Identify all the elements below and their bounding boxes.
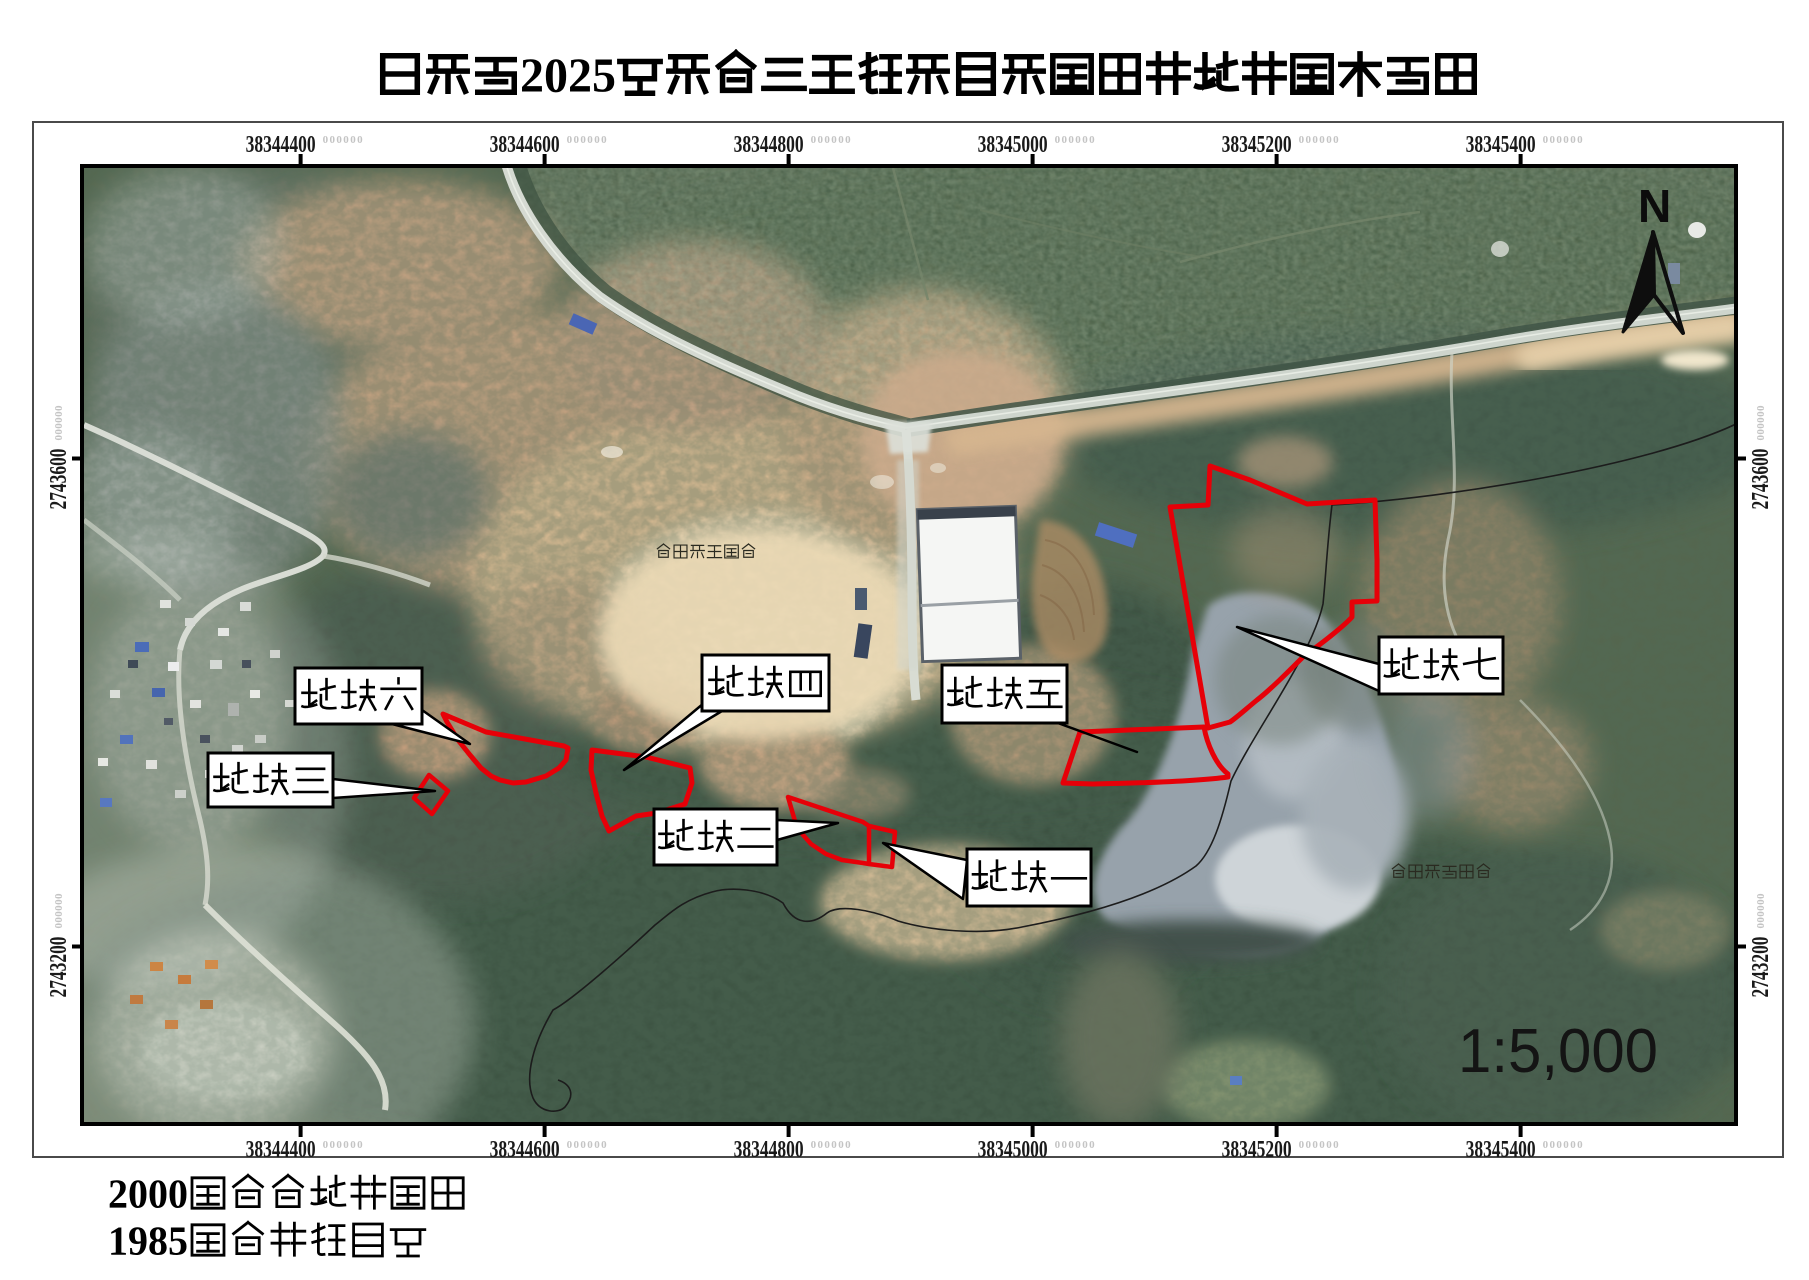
svg-text:000000: 000000 bbox=[567, 134, 608, 146]
svg-text:0: 0 bbox=[128, 1171, 148, 1216]
svg-text:000000: 000000 bbox=[1543, 134, 1584, 146]
svg-text:N: N bbox=[1638, 180, 1671, 232]
svg-text:000000: 000000 bbox=[323, 134, 364, 146]
svg-text:5: 5 bbox=[168, 1218, 188, 1263]
svg-text:000000: 000000 bbox=[811, 134, 852, 146]
svg-text:0: 0 bbox=[148, 1171, 168, 1216]
svg-text:2743600: 2743600 bbox=[1748, 449, 1774, 510]
svg-text:2743200: 2743200 bbox=[46, 937, 72, 998]
svg-text:000000: 000000 bbox=[1543, 1139, 1584, 1151]
svg-text:1: 1 bbox=[108, 1218, 128, 1263]
svg-text:000000: 000000 bbox=[811, 1139, 852, 1151]
svg-text:2743200: 2743200 bbox=[1748, 937, 1774, 998]
svg-text:000000: 000000 bbox=[1755, 893, 1767, 929]
svg-text:2743600: 2743600 bbox=[46, 449, 72, 510]
svg-text:38345000: 38345000 bbox=[978, 132, 1048, 158]
svg-text:0: 0 bbox=[544, 47, 568, 102]
svg-text:000000: 000000 bbox=[1055, 1139, 1096, 1151]
svg-text:8: 8 bbox=[148, 1218, 168, 1263]
svg-text:38345200: 38345200 bbox=[1222, 1137, 1292, 1163]
svg-text:38344400: 38344400 bbox=[246, 1137, 316, 1163]
svg-text:38345400: 38345400 bbox=[1466, 132, 1536, 158]
svg-text:2: 2 bbox=[568, 47, 592, 102]
svg-text:38345400: 38345400 bbox=[1466, 1137, 1536, 1163]
svg-text:1:5,000: 1:5,000 bbox=[1458, 1017, 1658, 1086]
svg-text:38344600: 38344600 bbox=[490, 132, 560, 158]
svg-text:38345200: 38345200 bbox=[1222, 132, 1292, 158]
svg-text:000000: 000000 bbox=[1299, 1139, 1340, 1151]
svg-text:9: 9 bbox=[128, 1218, 148, 1263]
svg-text:000000: 000000 bbox=[1755, 405, 1767, 441]
svg-text:000000: 000000 bbox=[323, 1139, 364, 1151]
svg-text:5: 5 bbox=[592, 47, 616, 102]
svg-text:000000: 000000 bbox=[1299, 134, 1340, 146]
svg-text:38345000: 38345000 bbox=[978, 1137, 1048, 1163]
svg-text:000000: 000000 bbox=[567, 1139, 608, 1151]
svg-text:000000: 000000 bbox=[53, 405, 65, 441]
svg-text:2: 2 bbox=[520, 47, 544, 102]
svg-text:38344400: 38344400 bbox=[246, 132, 316, 158]
svg-text:38344600: 38344600 bbox=[490, 1137, 560, 1163]
svg-text:2: 2 bbox=[108, 1171, 128, 1216]
svg-text:38344800: 38344800 bbox=[734, 1137, 804, 1163]
svg-text:38344800: 38344800 bbox=[734, 132, 804, 158]
svg-text:000000: 000000 bbox=[1055, 134, 1096, 146]
svg-text:0: 0 bbox=[168, 1171, 188, 1216]
svg-text:000000: 000000 bbox=[53, 893, 65, 929]
